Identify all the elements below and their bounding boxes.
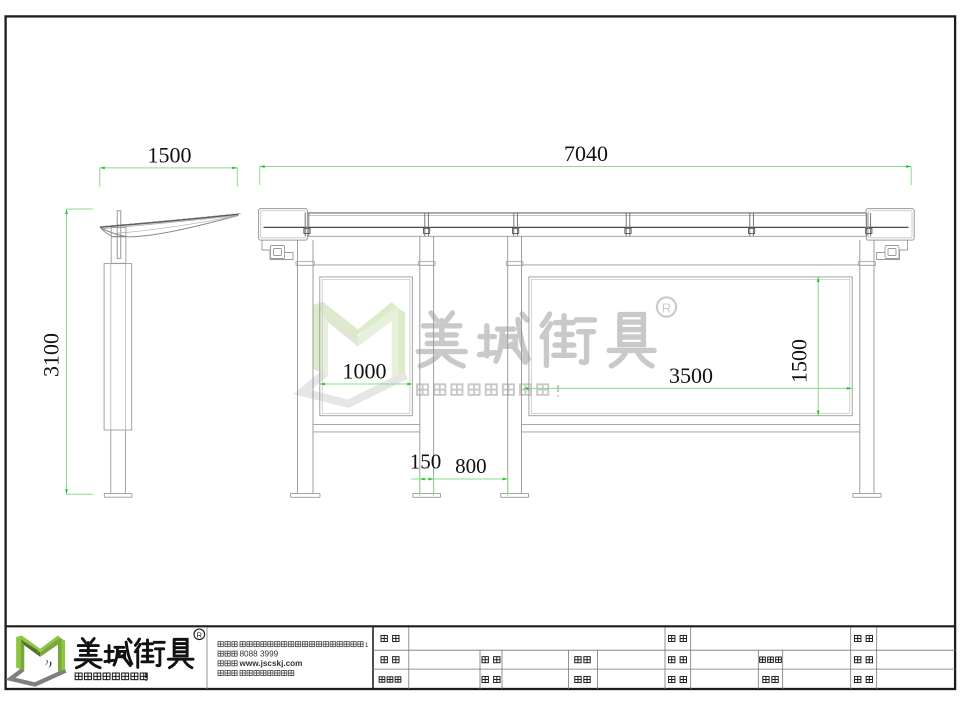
svg-text:1000: 1000	[343, 358, 387, 383]
svg-text:3500: 3500	[669, 363, 713, 388]
svg-text:7040: 7040	[564, 141, 608, 166]
svg-text:8088 3999: 8088 3999	[240, 649, 279, 658]
svg-text:R: R	[662, 301, 671, 316]
svg-text:www.jscskj.com: www.jscskj.com	[239, 659, 303, 668]
svg-text:1500: 1500	[787, 339, 812, 383]
svg-text:150: 150	[410, 450, 442, 474]
svg-text:800: 800	[455, 454, 487, 478]
svg-text:3100: 3100	[39, 333, 64, 377]
svg-text:1500: 1500	[148, 142, 192, 167]
svg-text:1: 1	[365, 642, 369, 649]
svg-text:R: R	[197, 631, 203, 640]
